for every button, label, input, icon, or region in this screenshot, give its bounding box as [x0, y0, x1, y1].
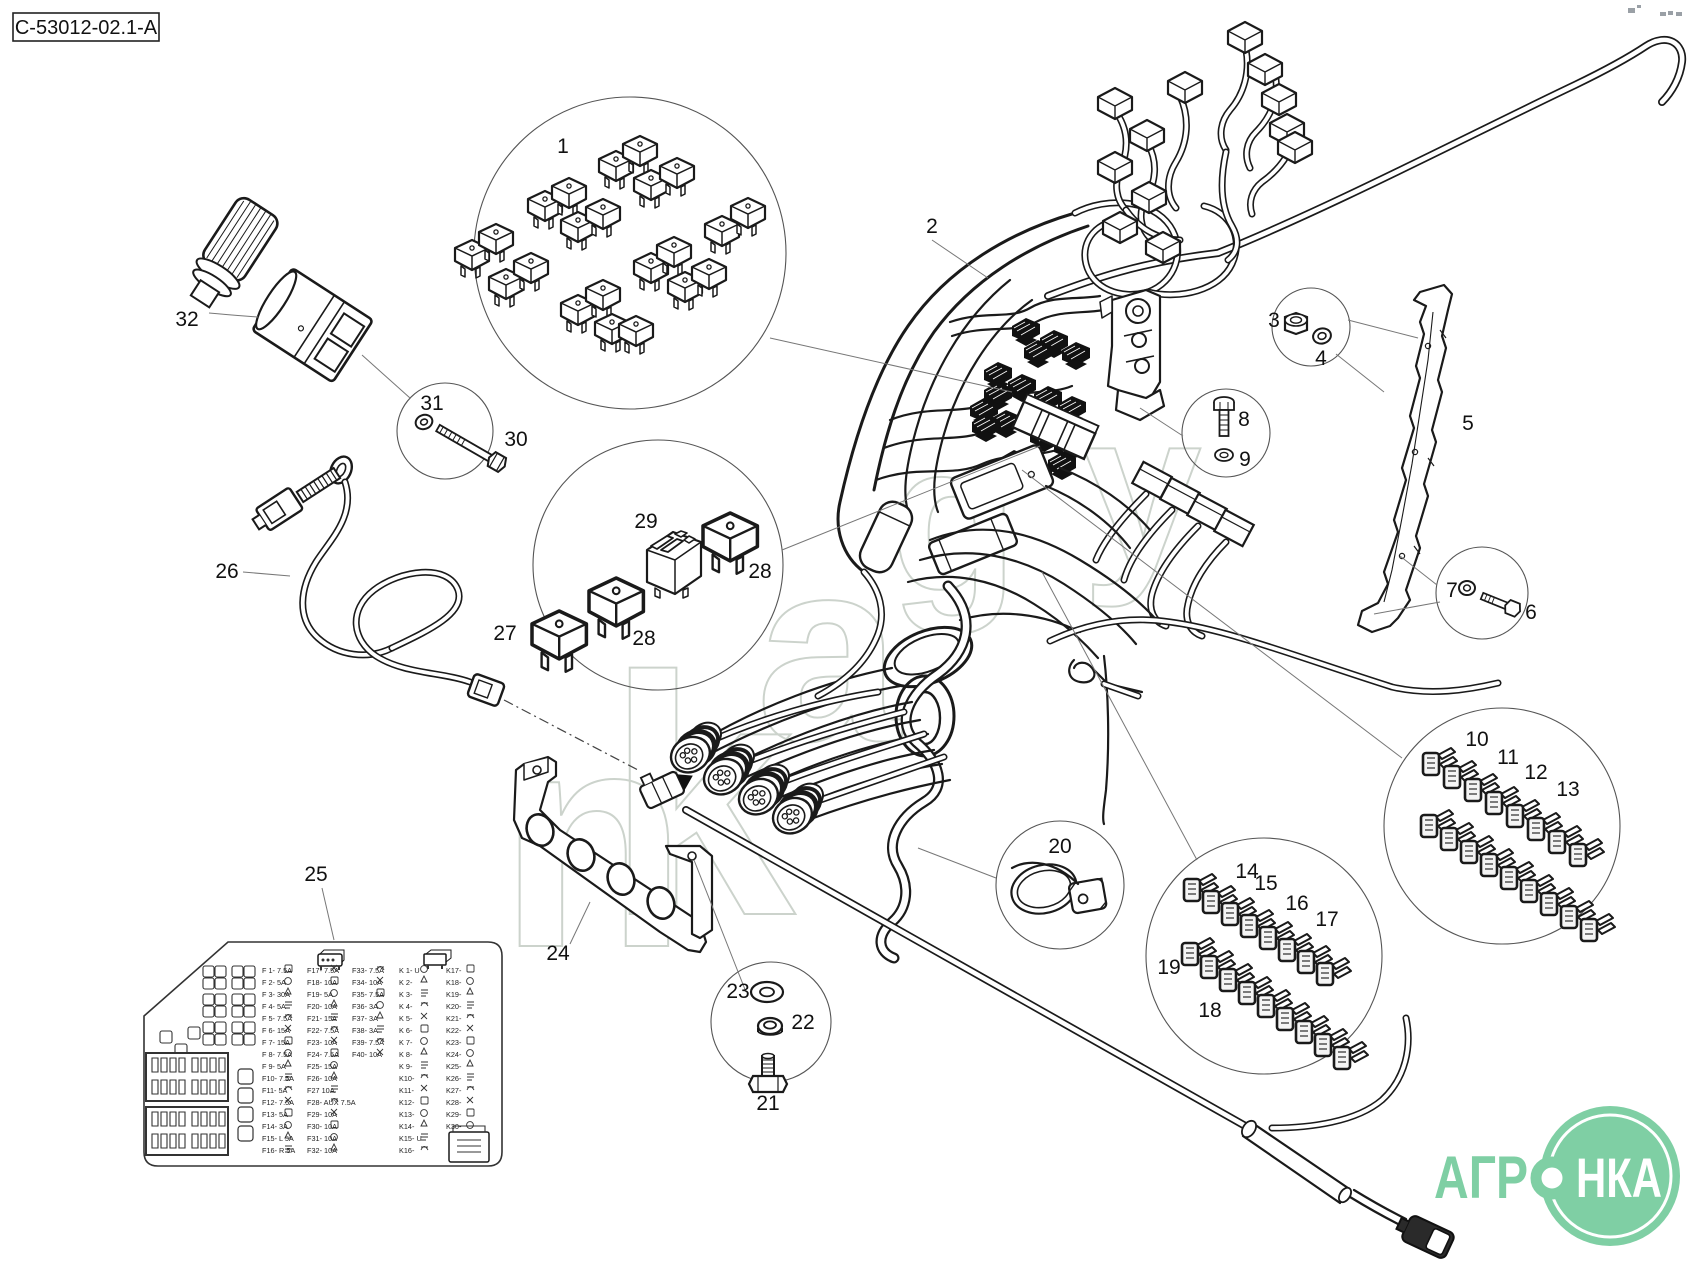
svg-text:K18-: K18- — [446, 978, 462, 987]
svg-text:K27-: K27- — [446, 1086, 462, 1095]
svg-text:3: 3 — [1268, 309, 1280, 332]
svg-text:27: 27 — [493, 622, 516, 645]
svg-text:28: 28 — [748, 560, 771, 583]
svg-text:F10- 7.5A: F10- 7.5A — [262, 1074, 294, 1083]
svg-text:F18- 10A: F18- 10A — [307, 978, 337, 987]
svg-text:K 5-: K 5- — [399, 1014, 413, 1023]
svg-text:2: 2 — [926, 215, 938, 238]
svg-text:22: 22 — [791, 1011, 814, 1034]
svg-text:F27 10A: F27 10A — [307, 1086, 335, 1095]
svg-text:24: 24 — [546, 942, 570, 965]
svg-text:K16-: K16- — [399, 1146, 415, 1155]
svg-text:31: 31 — [420, 392, 443, 415]
svg-text:F 8- 7.5A: F 8- 7.5A — [262, 1050, 292, 1059]
svg-text:16: 16 — [1285, 892, 1308, 915]
svg-text:20: 20 — [1048, 835, 1071, 858]
svg-text:K17-: K17- — [446, 966, 462, 975]
svg-text:F 2- 5A: F 2- 5A — [262, 978, 286, 987]
svg-text:19: 19 — [1157, 956, 1180, 979]
svg-text:F12- 7.5A: F12- 7.5A — [262, 1098, 294, 1107]
svg-text:K 3-: K 3- — [399, 990, 413, 999]
svg-text:9: 9 — [1239, 448, 1251, 471]
svg-text:K12-: K12- — [399, 1098, 415, 1107]
svg-text:K13-: K13- — [399, 1110, 415, 1119]
svg-text:21: 21 — [756, 1092, 779, 1115]
svg-text:F29- 10A: F29- 10A — [307, 1110, 337, 1119]
svg-text:F38- 3A: F38- 3A — [352, 1026, 378, 1035]
svg-text:26: 26 — [215, 560, 238, 583]
svg-text:АГР: АГР — [1434, 1144, 1528, 1211]
svg-text:F16- R 5A: F16- R 5A — [262, 1146, 295, 1155]
svg-text:K20-: K20- — [446, 1002, 462, 1011]
svg-text:K 8-: K 8- — [399, 1050, 413, 1059]
svg-text:13: 13 — [1556, 778, 1579, 801]
svg-text:18: 18 — [1198, 999, 1221, 1022]
svg-text:F36- 3A: F36- 3A — [352, 1002, 378, 1011]
svg-text:23: 23 — [726, 980, 749, 1003]
svg-text:K22-: K22- — [446, 1026, 462, 1035]
svg-text:K 9-: K 9- — [399, 1062, 413, 1071]
svg-text:K11-: K11- — [399, 1086, 414, 1095]
svg-text:10: 10 — [1465, 728, 1488, 751]
svg-text:K 1- U: K 1- U — [399, 966, 420, 975]
svg-text:F 4- 5A: F 4- 5A — [262, 1002, 286, 1011]
svg-text:K15- U: K15- U — [399, 1134, 422, 1143]
svg-text:7: 7 — [1446, 579, 1458, 602]
svg-text:K 4-: K 4- — [399, 1002, 413, 1011]
svg-text:17: 17 — [1315, 908, 1338, 931]
svg-text:K29-: K29- — [446, 1110, 462, 1119]
svg-text:F31- 10A: F31- 10A — [307, 1134, 337, 1143]
svg-text:29: 29 — [634, 510, 657, 533]
svg-text:5: 5 — [1462, 412, 1474, 435]
svg-text:K23-: K23- — [446, 1038, 462, 1047]
svg-text:F25- 15A: F25- 15A — [307, 1062, 337, 1071]
svg-text:F19- 5A: F19- 5A — [307, 990, 333, 999]
svg-text:4: 4 — [1315, 347, 1327, 370]
svg-text:F30- 10A: F30- 10A — [307, 1122, 337, 1131]
svg-text:F14- 3A: F14- 3A — [262, 1122, 288, 1131]
svg-text:K10-: K10- — [399, 1074, 415, 1083]
svg-text:1: 1 — [557, 135, 569, 158]
svg-text:F35- 7.5A: F35- 7.5A — [352, 990, 384, 999]
svg-text:K 7-: K 7- — [399, 1038, 413, 1047]
svg-text:F15- L 5A: F15- L 5A — [262, 1134, 294, 1143]
svg-text:C-53012-02.1-A: C-53012-02.1-A — [15, 17, 158, 39]
svg-text:K 6-: K 6- — [399, 1026, 413, 1035]
svg-text:6: 6 — [1525, 601, 1537, 624]
svg-text:K21-: K21- — [446, 1014, 462, 1023]
svg-text:F 1- 7.5A: F 1- 7.5A — [262, 966, 292, 975]
svg-text:НКА: НКА — [1576, 1146, 1662, 1209]
svg-text:F21- 15A: F21- 15A — [307, 1014, 337, 1023]
svg-text:K 2-: K 2- — [399, 978, 413, 987]
svg-text:F37- 3A: F37- 3A — [352, 1014, 378, 1023]
svg-text:F 9- 5A: F 9- 5A — [262, 1062, 286, 1071]
svg-text:K26-: K26- — [446, 1074, 462, 1083]
svg-text:F13- 5A: F13- 5A — [262, 1110, 288, 1119]
svg-text:30: 30 — [504, 428, 527, 451]
svg-text:25: 25 — [304, 863, 327, 886]
svg-text:F24- 7.5A: F24- 7.5A — [307, 1050, 339, 1059]
svg-text:15: 15 — [1254, 872, 1277, 895]
svg-text:F11- 5A: F11- 5A — [262, 1086, 288, 1095]
svg-text:K14-: K14- — [399, 1122, 415, 1131]
svg-text:K24-: K24- — [446, 1050, 462, 1059]
svg-text:11: 11 — [1497, 746, 1519, 769]
svg-text:K28-: K28- — [446, 1098, 462, 1107]
svg-text:F23- 10A: F23- 10A — [307, 1038, 337, 1047]
svg-text:28: 28 — [632, 627, 655, 650]
svg-text:32: 32 — [175, 308, 198, 331]
svg-text:K25-: K25- — [446, 1062, 462, 1071]
svg-text:8: 8 — [1238, 408, 1250, 431]
svg-text:K19-: K19- — [446, 990, 462, 999]
svg-text:12: 12 — [1524, 761, 1547, 784]
svg-text:F 7- 15A: F 7- 15A — [262, 1038, 290, 1047]
